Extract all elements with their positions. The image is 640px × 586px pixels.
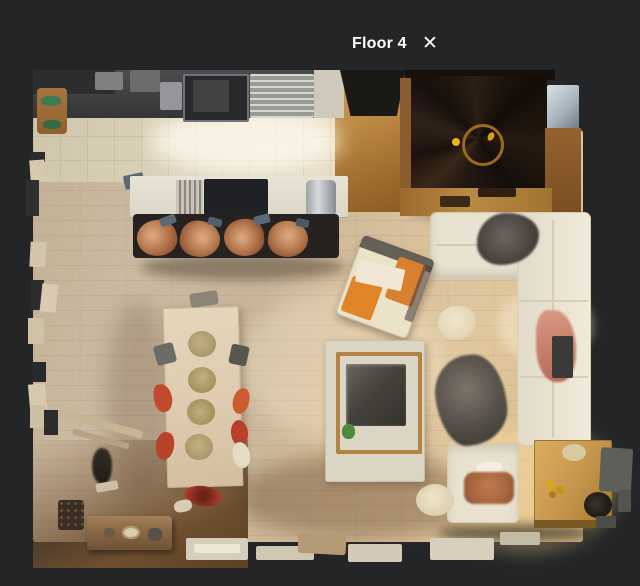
radiator-fragment-4	[430, 538, 494, 560]
window-fragment-4	[29, 242, 46, 268]
side-table	[534, 440, 612, 528]
sofa-right-seam-3	[520, 376, 588, 378]
island-cooktop	[204, 179, 268, 215]
armchair-plaid-fold	[355, 260, 406, 291]
blanket-dark-patch	[552, 336, 573, 378]
armchair-edge-dark	[404, 264, 433, 322]
side-table-fruit-2	[556, 486, 564, 494]
sofa-right-section	[517, 212, 591, 446]
sideboard-bench	[87, 516, 172, 550]
coffee-table	[325, 340, 425, 482]
kitchen-tile-floor	[33, 112, 335, 182]
cutting-board	[37, 88, 67, 134]
side-table-edge	[534, 520, 612, 528]
dining-chair-red-bottom	[183, 483, 223, 508]
salmon-blanket	[536, 310, 576, 382]
stool-back-accent-4	[295, 218, 309, 228]
bench-item-dark	[148, 528, 162, 541]
bench-bowl	[122, 526, 140, 539]
coffee-table-firebox	[346, 364, 406, 426]
hall-wood-strip	[335, 70, 435, 212]
dining-plate-3	[187, 399, 215, 425]
window-fragment-10	[30, 405, 45, 428]
kitchen-counter-corner	[33, 70, 115, 94]
rust-pillow	[464, 472, 514, 504]
armchair-back-dark	[359, 235, 435, 273]
wood-floor	[33, 130, 583, 542]
armchair-cushion-right	[384, 256, 426, 307]
sofa-chaise	[447, 443, 519, 523]
dining-plate-2	[188, 367, 216, 393]
sofa-corner-glow	[498, 288, 593, 363]
side-table-dark-disc	[584, 492, 612, 518]
stair-landing-notch	[440, 196, 470, 207]
kitchen-counter	[33, 70, 343, 118]
radiator-fragment-3	[348, 544, 402, 562]
wall-fragment-gray-3	[618, 490, 631, 512]
dining-chair-gray-left	[153, 342, 177, 366]
stair-landing-shadow	[408, 198, 548, 220]
floor-tongue	[298, 533, 347, 555]
bar-stool-4	[266, 218, 311, 259]
patterned-box	[58, 500, 84, 530]
window-fragment-7	[28, 318, 44, 344]
wood-plank-lines	[33, 130, 583, 542]
floor-plank-piece	[58, 409, 143, 439]
stair-landing-notch-2	[478, 188, 516, 197]
counter-appliance-2	[130, 70, 160, 92]
island-trash-bin	[306, 180, 336, 216]
stair-newel-ring	[462, 124, 504, 166]
sheepskin-rug	[430, 351, 512, 450]
armchair	[335, 235, 435, 340]
right-warm-glow	[440, 425, 615, 550]
chaise-white-pad	[475, 460, 502, 476]
sofa-top-seam	[436, 244, 546, 246]
bar-stool-2	[177, 217, 224, 261]
floor-pouf-low	[416, 484, 454, 516]
stool-back-accent	[159, 214, 177, 228]
doorway-dark	[340, 70, 406, 116]
dish-rack	[250, 74, 314, 118]
radiator-fragment-inner	[194, 544, 240, 553]
window-fragment	[30, 152, 45, 162]
radiator-fragment-2	[256, 546, 314, 560]
island-grill	[176, 180, 203, 214]
under-sofa-shadow	[438, 524, 593, 542]
stool-back-accent-3	[253, 213, 271, 226]
floorplan-map[interactable]	[0, 0, 640, 586]
dining-chair-red-left-1	[152, 383, 174, 413]
dining-chair-white-right	[231, 441, 252, 470]
coffee-table-green-item	[342, 424, 355, 439]
stool-row-shadow	[133, 214, 339, 258]
sofa-right-seam	[552, 220, 554, 438]
chair-cream-fragment	[173, 498, 193, 513]
spiral-staircase	[405, 76, 547, 190]
staircase-top-wall	[405, 70, 555, 80]
left-floor-shadow	[105, 300, 170, 500]
dining-plate-1	[188, 331, 216, 357]
stair-landing-wood	[400, 188, 552, 216]
wall-segment-dark	[404, 126, 432, 206]
window-fragment-8	[32, 362, 46, 382]
bench-item-small	[104, 528, 115, 538]
staircase-rail	[400, 78, 411, 190]
coffee-table-frame	[336, 352, 422, 454]
dining-chair-red-right	[230, 419, 250, 447]
armchair-cushion-left	[340, 275, 383, 321]
window-fragment-11	[44, 410, 58, 435]
round-pouf	[438, 306, 476, 340]
stair-window-patch	[547, 85, 579, 131]
dining-chair-gray-right	[228, 343, 250, 366]
side-table-fruit	[546, 480, 555, 489]
dining-chair-orange-right	[230, 387, 251, 416]
bottom-center-shadow	[235, 455, 485, 540]
dining-table	[163, 306, 244, 488]
kitchen-tile-grid	[33, 112, 335, 182]
sink-unit	[183, 74, 249, 122]
stair-light-dot-2	[486, 131, 496, 142]
stool-back-accent-2	[207, 216, 223, 227]
island-floor-shadow	[140, 254, 345, 280]
center-floor-glow	[240, 290, 450, 440]
counter-white-end	[314, 70, 344, 118]
radiator-fragment	[186, 538, 248, 560]
bar-stool-3	[222, 217, 266, 258]
sink-basin	[193, 80, 229, 112]
statue	[90, 447, 113, 485]
window-fragment-5	[31, 280, 44, 310]
wall-fragment-gray-2	[596, 516, 616, 528]
cutting-board-herbs-2	[43, 120, 61, 129]
kitchen-island	[130, 176, 348, 217]
counter-appliance-3	[160, 82, 182, 110]
counter-appliance	[95, 72, 123, 90]
stair-light-dot	[452, 138, 460, 146]
sofa-fur-throw	[477, 213, 539, 265]
window-fragment-2	[29, 160, 45, 183]
floorplan-view-screen: Floor 4 ✕	[0, 0, 640, 586]
sofa-top-section	[430, 212, 590, 280]
window-fragment-3	[26, 180, 39, 216]
dining-chair-gray-top	[189, 290, 219, 308]
dining-plate-4	[185, 434, 213, 460]
side-table-dish	[562, 444, 586, 461]
bar-stool-1	[134, 217, 180, 259]
statue-base	[95, 480, 118, 493]
floor-plank-piece-2	[72, 429, 130, 450]
window-fragment-9	[28, 383, 47, 410]
radiator-fragment-5	[500, 532, 540, 545]
dining-chair-red-left-2	[155, 431, 176, 461]
tile-light-glow	[150, 108, 340, 174]
sofa-right-seam-2	[520, 300, 588, 302]
stair-pillar-wood	[545, 128, 581, 216]
island-side-bits	[123, 172, 145, 190]
cutting-board-herbs	[41, 96, 61, 106]
side-table-fruit-3	[549, 491, 556, 498]
dark-floor-corner	[33, 440, 248, 568]
wall-fragment-gray	[599, 447, 633, 493]
window-fragment-6	[40, 283, 59, 313]
